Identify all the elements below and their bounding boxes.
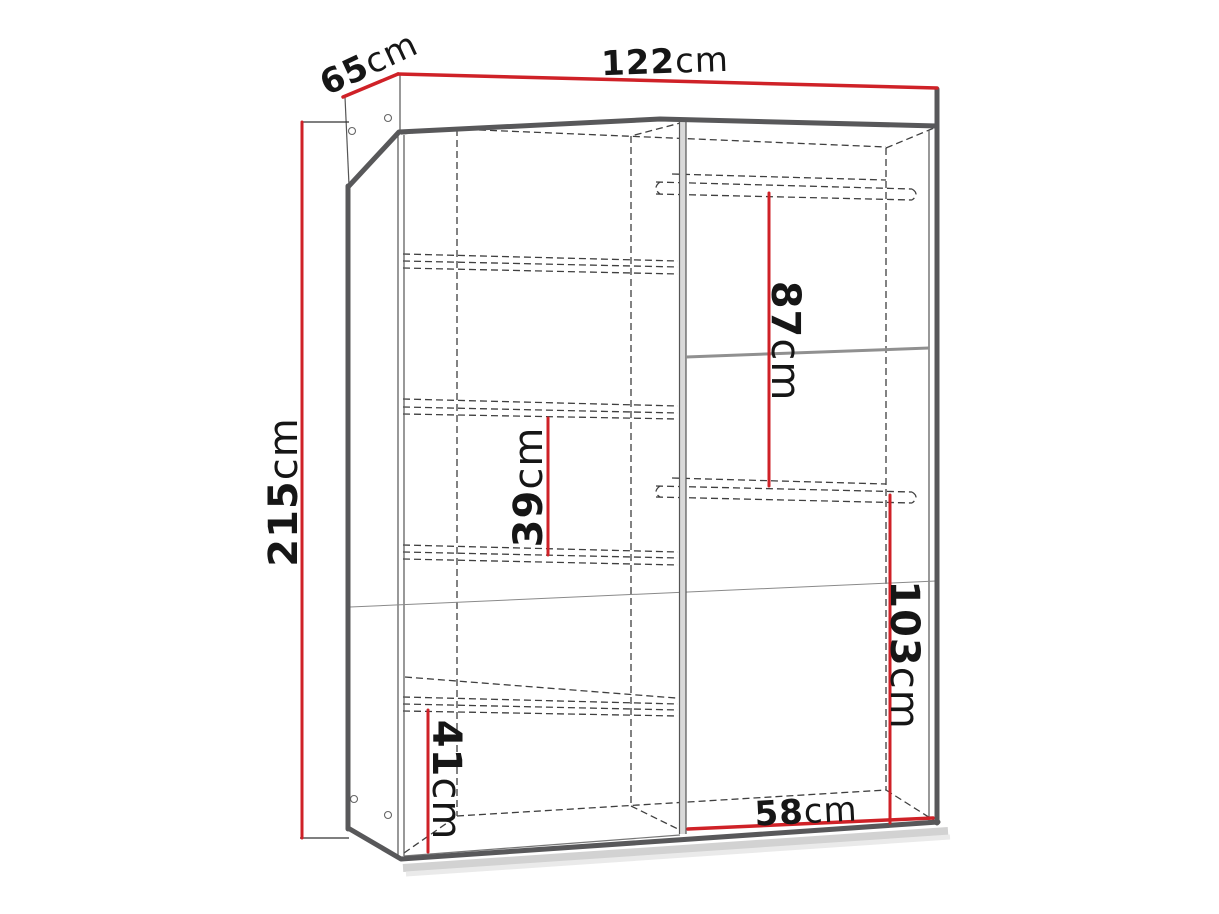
svg-text:41cm: 41cm (423, 720, 469, 841)
divider-top-depth-edge (631, 122, 684, 136)
label-41cm: 41cm (423, 720, 469, 841)
back-top-edge (457, 129, 886, 147)
back-panel-seam (350, 581, 936, 607)
dimension-lines (302, 74, 937, 852)
floor-right-depth-edge (886, 790, 935, 821)
left-shelf-1 (403, 254, 678, 274)
fitting-holes (349, 115, 392, 819)
left-shelf-4 (403, 677, 678, 716)
svg-text:215cm: 215cm (261, 417, 307, 566)
svg-text:122cm: 122cm (600, 40, 729, 84)
right-shelf-top (656, 174, 916, 200)
svg-text:58cm: 58cm (753, 789, 858, 834)
label-65cm: 65cm (314, 24, 424, 104)
divider-panel (680, 121, 687, 834)
svg-text:65cm: 65cm (314, 24, 424, 104)
label-215cm: 215cm (261, 417, 307, 566)
interior-lines (300, 74, 936, 857)
wardrobe-dimension-diagram: 122cm 65cm 215cm 87cm 39cm 41cm 103cm 58… (0, 0, 1219, 914)
left-bevel-outer-edge (345, 97, 349, 185)
top-front-edge (348, 119, 937, 187)
fitting-hole (349, 128, 356, 135)
hidden-edges (401, 122, 935, 853)
left-shelf-2 (403, 399, 678, 419)
dimension-labels: 122cm 65cm 215cm 87cm 39cm 41cm 103cm 58… (261, 24, 927, 840)
label-39cm: 39cm (506, 427, 552, 548)
label-87cm: 87cm (762, 281, 808, 402)
fitting-hole (385, 115, 392, 122)
label-103cm: 103cm (881, 580, 927, 729)
svg-text:87cm: 87cm (762, 281, 808, 402)
right-shelf-middle (656, 478, 916, 503)
label-58cm: 58cm (753, 789, 858, 834)
divider-bottom-depth-edge (631, 806, 684, 832)
svg-text:103cm: 103cm (881, 580, 927, 729)
fitting-hole (385, 812, 392, 819)
svg-text:39cm: 39cm (506, 427, 552, 548)
label-122cm: 122cm (600, 40, 729, 84)
fitting-hole (351, 796, 358, 803)
top-right-depth-edge (886, 128, 934, 148)
diagram-canvas: 122cm 65cm 215cm 87cm 39cm 41cm 103cm 58… (0, 0, 1219, 914)
